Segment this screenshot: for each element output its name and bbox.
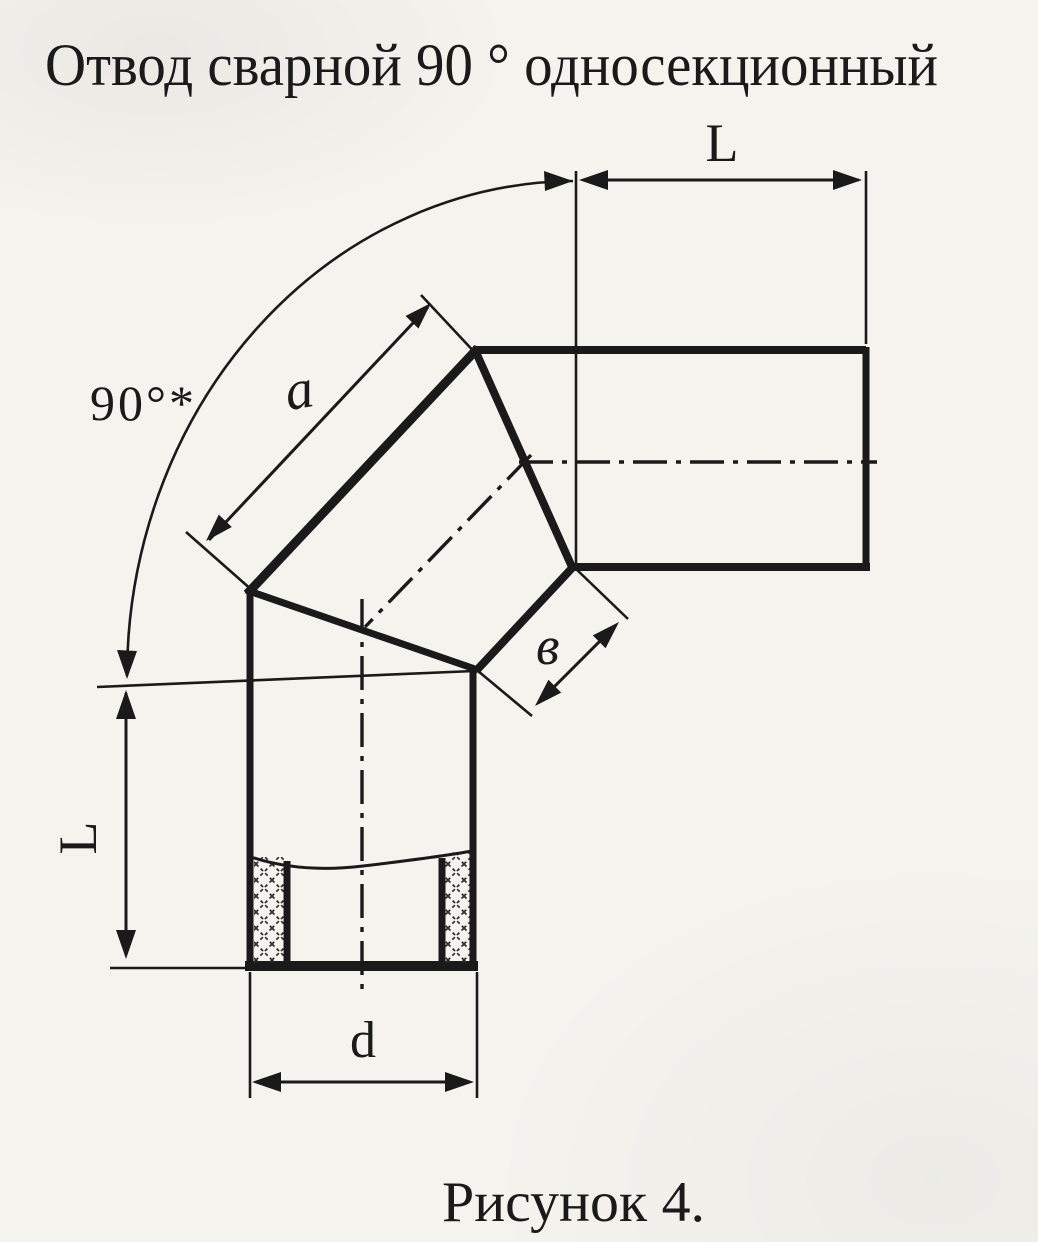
arrowhead-right bbox=[833, 170, 862, 190]
upper-miter-joint bbox=[475, 350, 572, 567]
angle-dimension: 90°* bbox=[90, 171, 573, 679]
extension-line-top bbox=[97, 671, 474, 687]
scanned-drawing-page: Отвод сварной 90 ° односекционный bbox=[0, 0, 1038, 1242]
extension-line-top bbox=[574, 567, 628, 619]
dimension-line bbox=[209, 307, 428, 540]
arc-arrowhead-top bbox=[544, 171, 573, 191]
length-label-left: L bbox=[48, 822, 108, 855]
arrowhead-bottom bbox=[116, 930, 136, 959]
drawing-title: Отвод сварной 90 ° односекционный bbox=[45, 32, 938, 98]
a-label: a bbox=[280, 357, 318, 423]
arrowhead-left bbox=[252, 1072, 281, 1092]
dimension-d: d bbox=[250, 972, 477, 1098]
arrowhead-left bbox=[579, 170, 608, 190]
technical-drawing-canvas: Отвод сварной 90 ° односекционный bbox=[0, 0, 1038, 1242]
b-label: в bbox=[536, 616, 559, 676]
extension-line-bottom bbox=[478, 671, 532, 716]
dimension-L-top: L bbox=[576, 113, 866, 566]
extension-line-bottom bbox=[186, 532, 253, 591]
arc-arrowhead-bottom bbox=[117, 650, 137, 679]
miter-outer-edge bbox=[247, 348, 478, 594]
arrowhead-right bbox=[445, 1072, 474, 1092]
diameter-label: d bbox=[350, 1012, 376, 1069]
length-label-top: L bbox=[706, 113, 739, 173]
arrowhead-top bbox=[406, 303, 432, 329]
arrowhead-top bbox=[116, 690, 136, 719]
dimension-a: a bbox=[186, 295, 479, 591]
miter-section-centerline bbox=[365, 455, 531, 627]
angle-label: 90°* bbox=[90, 375, 197, 431]
figure-caption: Рисунок 4. bbox=[442, 1171, 705, 1234]
hatch-right-wall bbox=[445, 852, 471, 963]
hatch-left-wall bbox=[254, 857, 284, 963]
